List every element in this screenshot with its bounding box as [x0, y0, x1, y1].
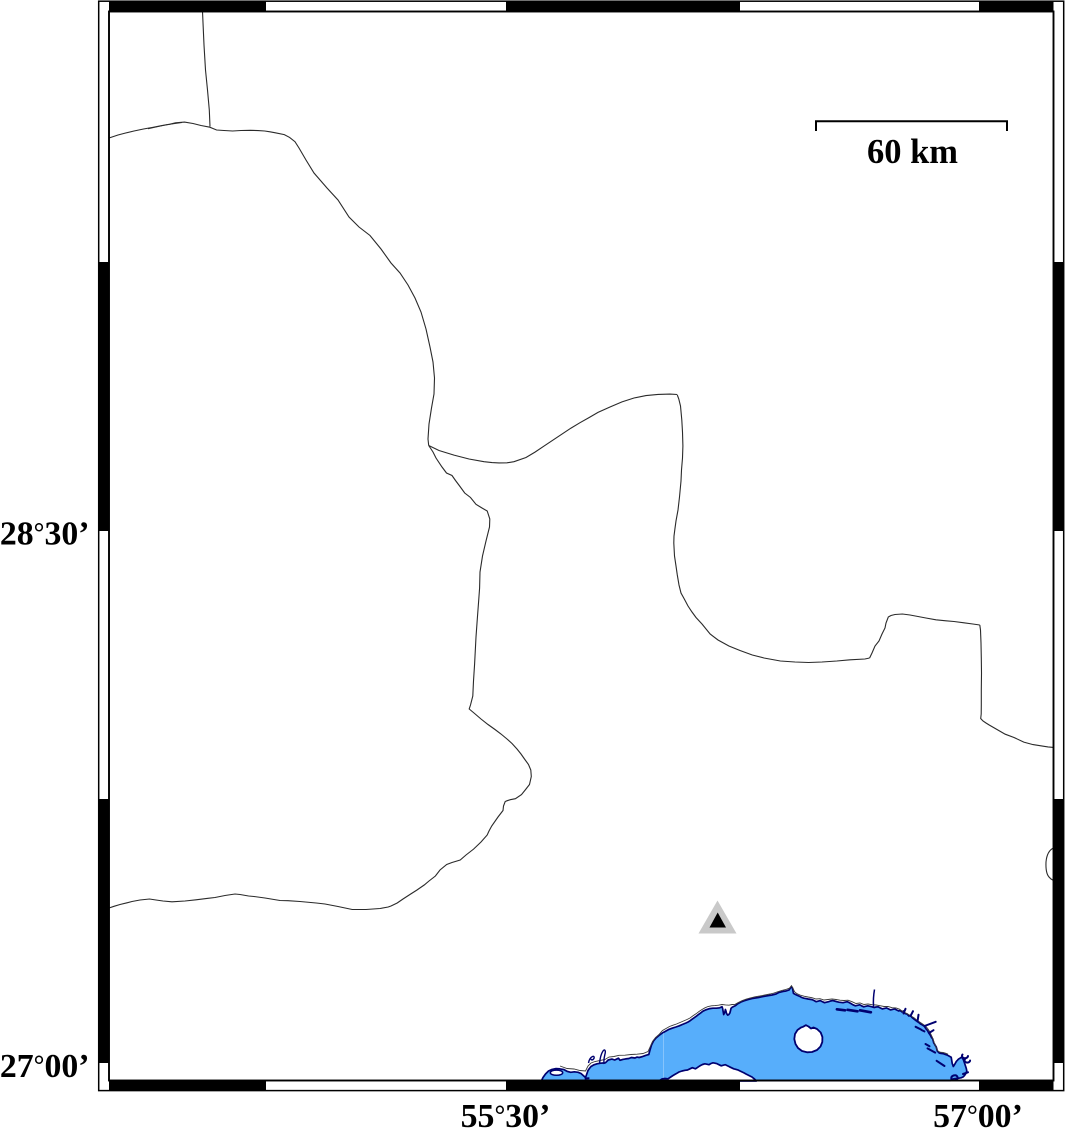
- svg-text:57°00’: 57°00’: [933, 1098, 1023, 1129]
- svg-text:27°00’: 27°00’: [0, 1048, 90, 1085]
- svg-text:60 km: 60 km: [867, 133, 958, 171]
- svg-text:55°30’: 55°30’: [461, 1098, 551, 1129]
- svg-text:28°30’: 28°30’: [0, 516, 90, 553]
